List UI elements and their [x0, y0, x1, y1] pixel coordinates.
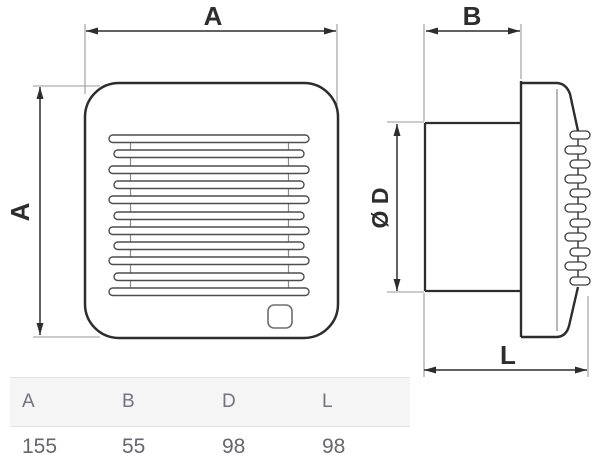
table-header-B: B	[110, 391, 210, 413]
table-header-row: A B D L	[10, 377, 410, 427]
louvre-tab	[565, 204, 586, 212]
dim-width-A: A	[86, 1, 336, 35]
grille-slat	[114, 273, 304, 281]
table-value-L: 98	[310, 435, 410, 459]
louvre-tab	[570, 160, 590, 168]
dim-label-height: A	[5, 202, 35, 221]
fan-front-panel	[85, 83, 338, 338]
dim-height-A: A	[5, 87, 44, 335]
dim-label-width: A	[204, 1, 223, 31]
dim-label-diameter: Ø D	[367, 188, 393, 229]
louvre-tab	[570, 219, 590, 227]
louvre-tabs	[565, 131, 590, 285]
dim-label-length: L	[500, 340, 516, 370]
table-value-row: 155 55 98 98	[10, 427, 410, 466]
louvre-tab	[565, 233, 586, 241]
louvre-tab	[570, 189, 590, 197]
grille-slat	[109, 227, 309, 235]
dim-label-depth: B	[463, 1, 482, 31]
dimension-table: A B D L 155 55 98 98	[10, 377, 410, 466]
duct-outline	[425, 123, 521, 291]
louvre-tab	[565, 262, 586, 270]
grille-slat	[109, 196, 309, 204]
louvre-tab	[570, 277, 590, 285]
arrow-down-icon	[394, 279, 401, 291]
table-header-L: L	[310, 391, 410, 413]
louvre-tab	[565, 146, 586, 154]
grille-slat	[109, 288, 309, 296]
grille-slat	[114, 242, 304, 250]
arrow-left-icon	[424, 367, 436, 374]
grille-slat	[114, 212, 304, 220]
table-value-A: 155	[10, 435, 110, 459]
technical-drawing: A A	[0, 0, 607, 380]
grille-slat	[109, 135, 309, 143]
arrow-left-icon	[426, 28, 438, 35]
arrow-up-icon	[394, 124, 401, 136]
grille-slat	[114, 150, 304, 158]
fan-dimension-drawing-page: A A	[0, 0, 607, 466]
louvre-tab	[565, 175, 586, 183]
arrow-down-icon	[37, 323, 44, 335]
arrow-left-icon	[86, 28, 98, 35]
side-extension-lines	[387, 24, 588, 377]
dim-depth-B: B	[426, 1, 520, 35]
dim-diameter-D: Ø D	[367, 124, 401, 291]
louvre-tab	[570, 131, 590, 139]
table-value-B: 55	[110, 435, 210, 459]
side-view: B Ø D L	[367, 1, 590, 377]
table-header-D: D	[210, 391, 310, 413]
table-value-D: 98	[210, 435, 310, 459]
front-view: A A	[5, 1, 338, 338]
arrow-right-icon	[324, 28, 336, 35]
table-header-A: A	[10, 391, 110, 413]
grille-slat	[109, 257, 309, 265]
arrow-right-icon	[575, 367, 587, 374]
dim-length-L: L	[424, 340, 587, 374]
indicator-window	[268, 305, 292, 328]
grille-slat	[114, 181, 304, 189]
arrow-right-icon	[508, 28, 520, 35]
louvre-tab	[570, 248, 590, 256]
arrow-up-icon	[37, 87, 44, 99]
grille-slat	[109, 166, 309, 174]
